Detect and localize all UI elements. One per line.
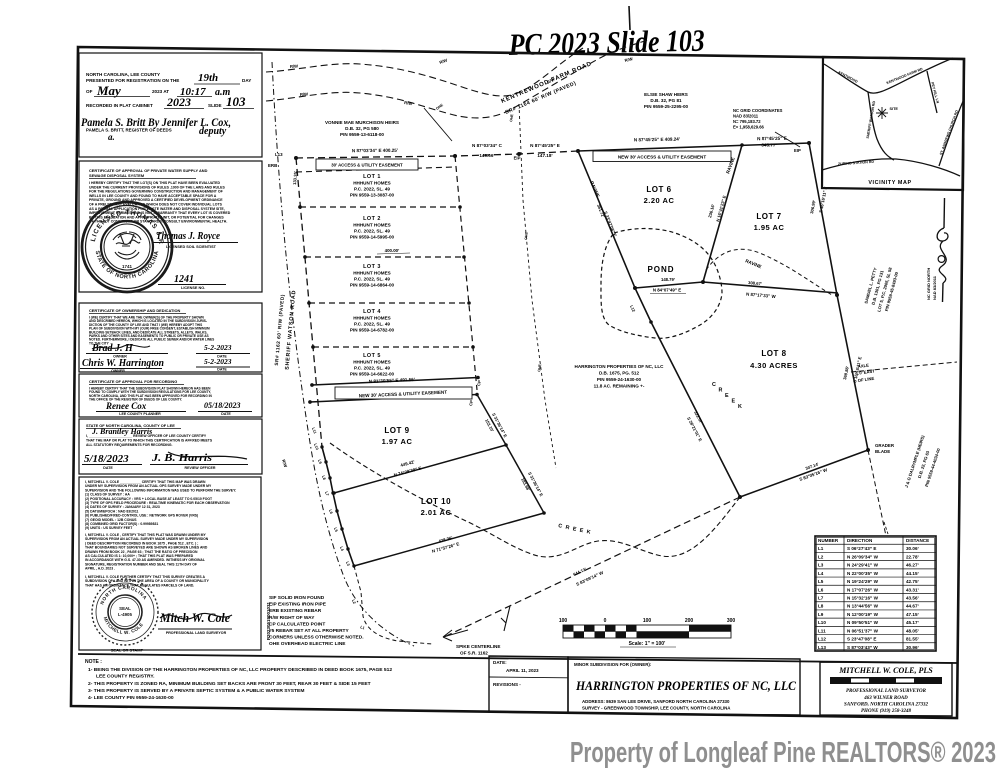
svg-text:05/18/2023: 05/18/2023	[204, 401, 240, 410]
svg-text:L12: L12	[818, 637, 826, 642]
svg-text:CORNERS UNLESS OTHERWISE NOTED: CORNERS UNLESS OTHERWISE NOTED.	[269, 635, 364, 641]
svg-text:1.95 AC: 1.95 AC	[754, 223, 785, 232]
svg-text:L13: L13	[818, 645, 826, 650]
svg-text:NEW 30’ ACCESS & UTILITY EASEM: NEW 30’ ACCESS & UTILITY EASEMENT	[618, 155, 707, 160]
svg-text:P.C. 2022, SL. 49: P.C. 2022, SL. 49	[354, 229, 390, 234]
svg-text:EIP: EIP	[794, 148, 801, 153]
svg-text:POND: POND	[647, 265, 674, 274]
svg-text:R: R	[719, 388, 723, 394]
svg-text:L5: L5	[818, 579, 824, 584]
svg-text:EIP: EIP	[514, 156, 521, 161]
svg-text:19th: 19th	[198, 72, 218, 84]
svg-text:APRIL , A.D. 2023 .: APRIL , A.D. 2023 .	[85, 567, 115, 571]
svg-text:LOT 7: LOT 7	[756, 212, 781, 221]
svg-text:148.79’: 148.79’	[661, 277, 675, 282]
svg-text:L10: L10	[818, 620, 826, 625]
svg-text:VICINITY MAP: VICINITY MAP	[868, 180, 911, 186]
svg-text:N 87°45’25” E: N 87°45’25” E	[757, 136, 787, 142]
svg-text:N 87°03’34” C: N 87°03’34” C	[472, 143, 503, 148]
svg-text:D.B. 1675, PG. 512: D.B. 1675, PG. 512	[599, 371, 640, 376]
svg-text:22.78’: 22.78’	[906, 554, 919, 559]
svg-text:2- THIS PROPERTY IS ZONED RA,: 2- THIS PROPERTY IS ZONED RA, MINIMUM BU…	[88, 681, 371, 687]
svg-text:deputy: deputy	[199, 126, 227, 137]
svg-text:D.B. 32, PG 81: D.B. 32, PG 81	[650, 98, 682, 103]
svg-text:N 12°00’19” W: N 12°00’19” W	[847, 612, 879, 617]
svg-text:DAY: DAY	[242, 78, 251, 83]
svg-text:400.00’: 400.00’	[385, 248, 400, 253]
svg-text:NORTH CAROLINA, LEE COUNTY: NORTH CAROLINA, LEE COUNTY	[86, 72, 160, 77]
svg-text:MITCHELL W. COLE, PLS: MITCHELL W. COLE, PLS	[838, 666, 933, 675]
svg-text:SITE: SITE	[890, 107, 899, 111]
svg-text:NC GRID NORTH: NC GRID NORTH	[926, 268, 931, 300]
svg-text:N 84°07’49” E: N 84°07’49” E	[653, 288, 681, 293]
svg-text:E= 1,958,629.66: E= 1,958,629.66	[733, 125, 765, 130]
svg-text:5/18/2023: 5/18/2023	[84, 453, 129, 465]
svg-text:S 06°27’43” E: S 06°27’43” E	[847, 546, 876, 551]
svg-text:CERTIFICATE OF OWNERSHIP AND D: CERTIFICATE OF OWNERSHIP AND DEDICATION	[89, 308, 180, 313]
svg-text:SEWAGE DISPOSAL SYSTEM: SEWAGE DISPOSAL SYSTEM	[89, 173, 144, 178]
svg-text:N 24°29’41” W: N 24°29’41” W	[847, 563, 879, 568]
svg-text:LEE COUNTY REGISTRY.: LEE COUNTY REGISTRY.	[96, 674, 155, 680]
svg-text:30.96’: 30.96’	[906, 645, 919, 650]
svg-text:REVIEW OFFICER: REVIEW OFFICER	[185, 466, 216, 470]
svg-text:DATE: DATE	[217, 368, 227, 372]
svg-text:100: 100	[559, 618, 568, 624]
svg-text:N 87°45’25” E: N 87°45’25” E	[530, 143, 560, 148]
svg-text:R/W: R/W	[290, 63, 299, 69]
svg-text:CP CALCULATED POINT: CP CALCULATED POINT	[269, 621, 325, 627]
svg-text:REVISIONS -: REVISIONS -	[493, 682, 521, 687]
svg-text:OF S.R. 1162: OF S.R. 1162	[460, 651, 488, 656]
svg-text:2.01 AC: 2.01 AC	[421, 508, 452, 517]
svg-text:P.C. 2022, SL. 49: P.C. 2022, SL. 49	[354, 187, 390, 192]
svg-text:PIN 9559-14-6622-00: PIN 9559-14-6622-00	[350, 372, 395, 377]
svg-text:LICENSED SOIL SCIENTIST: LICENSED SOIL SCIENTIST	[166, 245, 217, 249]
svg-text:PIN 9559-25-2295-00: PIN 9559-25-2295-00	[644, 104, 689, 109]
svg-text:PIN 9559-13-3087-00: PIN 9559-13-3087-00	[350, 193, 395, 198]
svg-text:44.15’: 44.15’	[906, 571, 919, 576]
svg-text:2023 AT: 2023 AT	[152, 89, 169, 94]
svg-text:LOT 4: LOT 4	[363, 309, 381, 315]
svg-text:N 09°50’51” W: N 09°50’51” W	[847, 620, 879, 625]
svg-text:HHHUNT HOMES: HHHUNT HOMES	[353, 181, 391, 186]
svg-text:VONNIE MAE MURCHISON HEIRS: VONNIE MAE MURCHISON HEIRS	[325, 120, 399, 125]
svg-text:N 17°07’26” W: N 17°07’26” W	[847, 587, 879, 592]
svg-text:300: 300	[727, 618, 736, 624]
svg-text:Renee Cox: Renee Cox	[105, 401, 147, 411]
svg-text:N 15°32’16” W: N 15°32’16” W	[847, 596, 879, 601]
svg-text:ADDRESS: 8639 SAN LEE DRIVE,: ADDRESS: 8639 SAN LEE DRIVE, SANFORD NOR…	[582, 699, 730, 704]
svg-text:S 87°03’43” W: S 87°03’43” W	[847, 645, 878, 650]
svg-text:LOT 1: LOT 1	[363, 174, 381, 180]
svg-text:HHHUNT HOMES: HHHUNT HOMES	[353, 271, 391, 276]
svg-text:4- LEE COUNTY PIN 9559-24-1630: 4- LEE COUNTY PIN 9559-24-1630-00	[88, 695, 174, 701]
svg-text:463 WILNER ROAD: 463 WILNER ROAD	[863, 696, 908, 701]
svg-text:SEAL: SEAL	[119, 606, 131, 611]
svg-text:N 87°45’25” E 409.24’: N 87°45’25” E 409.24’	[634, 137, 680, 143]
svg-text:OHE OVERHEAD ELECTRIC LINE: OHE OVERHEAD ELECTRIC LINE	[269, 641, 346, 647]
svg-text:NAD 83/2011: NAD 83/2011	[733, 114, 759, 119]
svg-text:345.77’: 345.77’	[761, 143, 776, 148]
svg-text:0: 0	[604, 618, 607, 624]
svg-text:2.20 AC: 2.20 AC	[644, 196, 675, 205]
svg-text:SIF SOLID IRON FOUND: SIF SOLID IRON FOUND	[269, 595, 325, 601]
svg-text:HHHUNT HOMES: HHHUNT HOMES	[353, 316, 391, 321]
svg-text:L1: L1	[818, 546, 824, 551]
svg-text:DATE: DATE	[221, 412, 231, 416]
svg-text:1741: 1741	[122, 264, 133, 269]
svg-text:11.8 AC. REMAINING +-: 11.8 AC. REMAINING +-	[594, 384, 645, 389]
svg-text:47.15’: 47.15’	[906, 612, 919, 617]
svg-text:PIN 9559-14-6864-00: PIN 9559-14-6864-00	[350, 283, 395, 288]
svg-text:BLADE: BLADE	[875, 449, 890, 454]
svg-text:PIN 9559-24-1630-00: PIN 9559-24-1630-00	[597, 377, 642, 382]
svg-text:Mitch W. Cole: Mitch W. Cole	[159, 610, 230, 625]
svg-text:CERTIFICATE OF APPROVAL FOR RE: CERTIFICATE OF APPROVAL FOR RECORDING	[89, 379, 177, 384]
svg-text:SPIKE CENTERLINE: SPIKE CENTERLINE	[456, 644, 500, 649]
svg-text:D.B. 32, PG 580: D.B. 32, PG 580	[345, 126, 379, 131]
svg-text:P.C. 2022, SL. 49: P.C. 2022, SL. 49	[354, 322, 390, 327]
svg-text:L11: L11	[818, 628, 826, 633]
svg-text:46.27’: 46.27’	[906, 563, 919, 568]
svg-text:K: K	[738, 404, 742, 410]
svg-text:Chris W. Harrington: Chris W. Harrington	[82, 358, 164, 369]
svg-text:PROFESSIONAL LAND SURVEYOR: PROFESSIONAL LAND SURVEYOR	[166, 631, 227, 635]
svg-text:1.97 AC: 1.97 AC	[382, 437, 413, 446]
svg-text:45.17’: 45.17’	[906, 620, 919, 625]
svg-text:HARRINGTON PROPERTIES OF NC, L: HARRINGTON PROPERTIES OF NC, LLC	[575, 364, 665, 369]
svg-text:200: 200	[685, 618, 694, 624]
svg-text:NAD 83/2011: NAD 83/2011	[932, 275, 937, 300]
svg-text:DIRECTION: DIRECTION	[847, 538, 873, 543]
svg-text:L3: L3	[818, 563, 824, 568]
svg-text:May: May	[96, 83, 121, 98]
svg-text:SLIDE: SLIDE	[208, 103, 222, 108]
svg-text:NC GRID COORDINATES: NC GRID COORDINATES	[733, 108, 783, 113]
svg-text:RECORDED IN PLAT CABINET: RECORDED IN PLAT CABINET	[86, 103, 153, 108]
svg-text:LOT 10: LOT 10	[421, 497, 451, 506]
svg-text:ERB EXISTING REBAR: ERB EXISTING REBAR	[269, 608, 322, 614]
svg-text:1- BEING THE DIVISION OF THE H: 1- BEING THE DIVISION OF THE HARRINGTON …	[88, 667, 392, 673]
svg-text:SANFORD, NORTH CAROLINA 27332: SANFORD, NORTH CAROLINA 27332	[844, 703, 928, 708]
svg-text:PHONE (919) 258-3248: PHONE (919) 258-3248	[861, 709, 911, 714]
svg-text:DISTANCE: DISTANCE	[906, 538, 929, 543]
svg-text:N 22°00’35” W: N 22°00’35” W	[847, 571, 879, 576]
svg-text:100: 100	[643, 618, 652, 624]
svg-text:LEE COUNTY PLANNER: LEE COUNTY PLANNER	[119, 412, 161, 416]
svg-text:LICENSE NO.: LICENSE NO.	[181, 286, 205, 290]
svg-text:L-4905: L-4905	[118, 612, 132, 617]
svg-text:(9) UNITS : US SURVEY FEET: (9) UNITS : US SURVEY FEET	[85, 526, 133, 530]
svg-text:ALL STATUTORY REQUIREMENTS FOR: ALL STATUTORY REQUIREMENTS FOR RECORDING…	[86, 443, 172, 447]
svg-text:GRADER: GRADER	[875, 443, 895, 448]
svg-text:E: E	[725, 393, 729, 399]
svg-text:5-2-2023: 5-2-2023	[204, 343, 232, 352]
svg-text:PAMELA S. BRITT, REGISTER OF D: PAMELA S. BRITT, REGISTER OF DEEDS	[86, 128, 172, 133]
svg-text:43.56’: 43.56’	[906, 596, 919, 601]
svg-text:SURVEY - GREENWOOD TOWNSHIP: SURVEY - GREENWOOD TOWNSHIP, LEE COUNTY,…	[582, 706, 731, 711]
svg-text:103: 103	[226, 94, 246, 109]
svg-text:NUMBER: NUMBER	[818, 538, 839, 543]
svg-text:LOT 2: LOT 2	[363, 216, 381, 222]
svg-text:R/W RIGHT OF WAY: R/W RIGHT OF WAY	[269, 615, 315, 621]
svg-text:N 13°44’56” W: N 13°44’56” W	[847, 604, 879, 609]
svg-text:N 87°03’34” E 400.25’: N 87°03’34” E 400.25’	[352, 148, 398, 153]
svg-text:L2: L2	[818, 554, 824, 559]
svg-text:N 06°51’37” W: N 06°51’37” W	[847, 628, 879, 633]
svg-text:P.C. 2022, SL. 49: P.C. 2022, SL. 49	[354, 366, 390, 371]
svg-text:44.67’: 44.67’	[906, 604, 919, 609]
svg-text:I, _______________________ RE: I, _______________________ REVIEW OFFICE…	[86, 434, 207, 438]
svg-text:THAT THE MAP OR PLAT TO WHICH: THAT THE MAP OR PLAT TO WHICH THIS CERTI…	[86, 439, 213, 443]
svg-text:HARRINGTON PROPERTIES OF NC, L: HARRINGTON PROPERTIES OF NC, LLC	[575, 679, 796, 693]
svg-text:2023: 2023	[166, 95, 191, 109]
svg-text:LOT 6: LOT 6	[646, 185, 671, 194]
svg-text:43.31’: 43.31’	[906, 587, 919, 592]
svg-text:L6: L6	[818, 587, 824, 592]
svg-text:48.05’: 48.05’	[906, 628, 919, 633]
svg-text:L9: L9	[818, 612, 824, 617]
svg-text:P.C. 2022, SL. 49: P.C. 2022, SL. 49	[354, 277, 390, 282]
svg-text:30’ ACCESS & UTILITY EASEMENT: 30’ ACCESS & UTILITY EASEMENT	[331, 163, 403, 168]
svg-text:#5 REBAR SET AT ALL PROPERTY: #5 REBAR SET AT ALL PROPERTY	[269, 628, 349, 634]
svg-text:J. B. Harris: J. B. Harris	[151, 452, 212, 464]
svg-text:C: C	[712, 382, 716, 388]
svg-text:ERB: ERB	[268, 163, 277, 168]
svg-text:PIN 9559-14-5995-00: PIN 9559-14-5995-00	[350, 235, 395, 240]
svg-text:MINOR SUBDIVISION FOR (OWNER):: MINOR SUBDIVISION FOR (OWNER):	[574, 662, 652, 667]
svg-text:NOTE :: NOTE :	[85, 659, 102, 665]
svg-text:ELSIE SHAW HEIRS: ELSIE SHAW HEIRS	[644, 92, 688, 97]
svg-text:L8: L8	[818, 604, 824, 609]
svg-text:S 23°47’08” E: S 23°47’08” E	[847, 637, 876, 642]
svg-text:PROFESSIONAL LAND SURVEYOR: PROFESSIONAL LAND SURVEYOR	[846, 689, 927, 694]
svg-text:30.06’: 30.06’	[906, 546, 919, 551]
svg-text:OWNER: OWNER	[111, 369, 125, 373]
svg-text:Property of Longleaf Pine REAL: Property of Longleaf Pine REALTORS® 2023	[570, 737, 996, 768]
svg-text:APRIL 11, 2023: APRIL 11, 2023	[506, 668, 539, 673]
svg-text:1241: 1241	[174, 274, 194, 285]
svg-text:R/W: R/W	[300, 91, 309, 97]
svg-text:LOT 8: LOT 8	[761, 349, 786, 358]
svg-text:N= 795,183.72: N= 795,183.72	[733, 119, 761, 124]
svg-text:SEAL OR STAMP: SEAL OR STAMP	[111, 648, 144, 653]
svg-text:LOT 3: LOT 3	[363, 264, 381, 270]
svg-text:149.66’: 149.66’	[479, 153, 494, 158]
svg-text:PIN 9559-13-6118-00: PIN 9559-13-6118-00	[340, 132, 384, 137]
svg-text:4.30 ACRES: 4.30 ACRES	[750, 361, 798, 370]
svg-text:L13: L13	[275, 152, 283, 157]
svg-text:DATE:: DATE:	[493, 660, 507, 665]
svg-text:PIN 9559-14-6782-00: PIN 9559-14-6782-00	[350, 328, 395, 333]
svg-text:L4: L4	[818, 571, 824, 576]
svg-text:L7: L7	[818, 596, 824, 601]
svg-text:5-2-2023: 5-2-2023	[204, 357, 232, 366]
svg-text:LOT 9: LOT 9	[384, 426, 409, 435]
svg-text:81.55’: 81.55’	[906, 637, 919, 642]
svg-text:OF: OF	[86, 89, 93, 94]
svg-text:LOT 5: LOT 5	[363, 353, 381, 359]
svg-text:42.75’: 42.75’	[906, 579, 919, 584]
svg-text:EIP EXISTING IRON PIPE: EIP EXISTING IRON PIPE	[269, 602, 327, 608]
svg-text:HHHUNT HOMES: HHHUNT HOMES	[353, 360, 391, 365]
svg-text:HHHUNT HOMES: HHHUNT HOMES	[353, 223, 391, 228]
svg-text:N 26°09’34” W: N 26°09’34” W	[847, 554, 879, 559]
svg-text:OHE: OHE	[524, 231, 529, 240]
svg-text:Scale: 1” = 100’: Scale: 1” = 100’	[629, 641, 666, 647]
svg-text:N 19°24’29” W: N 19°24’29” W	[847, 579, 879, 584]
svg-text:147.18’: 147.18’	[537, 153, 552, 158]
svg-text:a.: a.	[108, 132, 115, 142]
svg-text:E: E	[732, 399, 736, 405]
svg-text:DATE: DATE	[103, 466, 113, 470]
svg-text:3- THIS PROPERTY IS SERVED BY: 3- THIS PROPERTY IS SERVED BY A PRIVATE …	[88, 688, 304, 694]
